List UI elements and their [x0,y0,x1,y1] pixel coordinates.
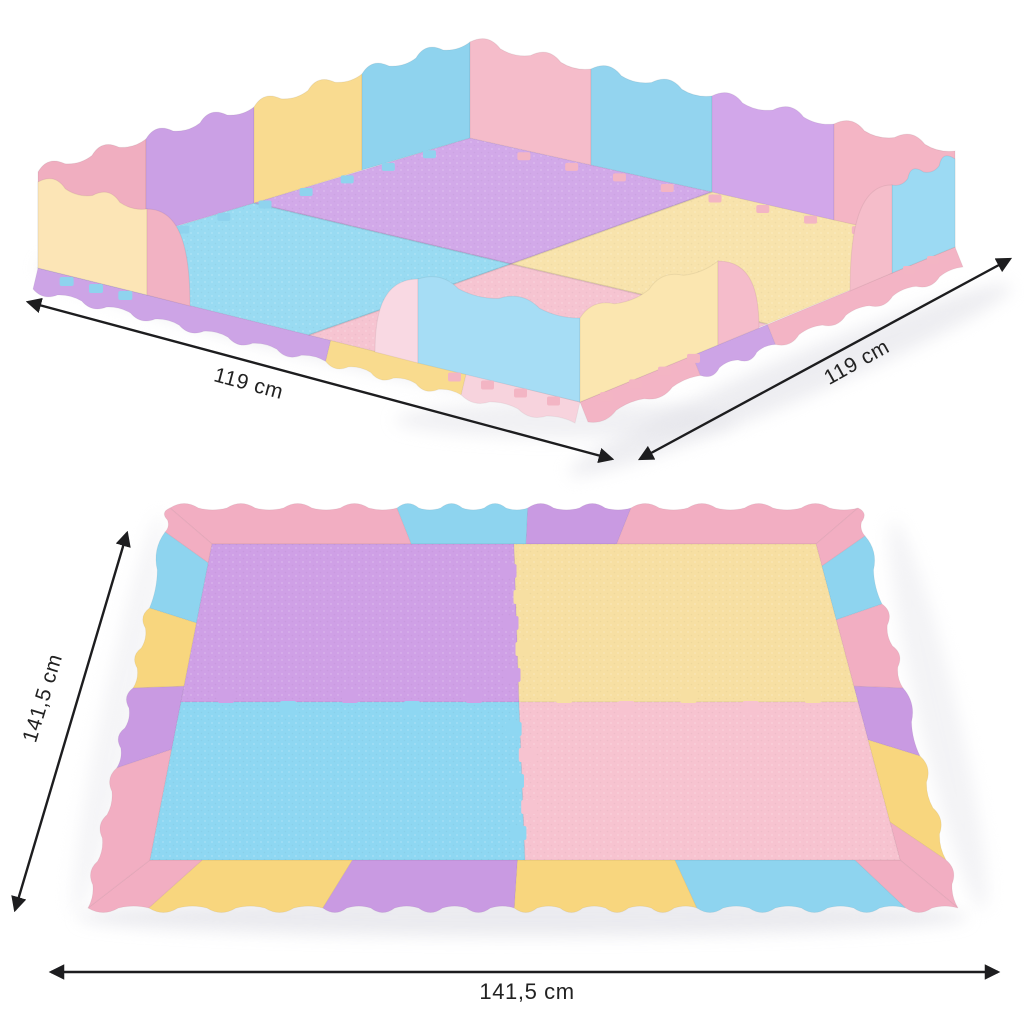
puzzle-tab [503,616,519,630]
assembled-playpen-illustration: 119 cm 119 cm [28,39,1020,494]
puzzle-tab [280,701,296,715]
puzzle-tab [60,277,74,286]
foam-texture [181,544,519,702]
border-piece [323,860,518,913]
puzzle-tab [382,163,395,171]
puzzle-tab [508,774,524,788]
puzzle-tab [342,689,358,703]
puzzle-tab [300,188,313,196]
puzzle-tab [629,379,642,388]
flat-mat-illustration: 141,5 cm 141,5 cm [15,504,1002,1005]
puzzle-tab [661,184,674,192]
puzzle-tab [218,689,234,703]
puzzle-tab [521,800,537,814]
border-piece [526,504,631,545]
puzzle-tab [217,213,230,221]
dimension-label-flat-side: 141,5 cm [18,651,67,745]
foam-texture [514,544,858,702]
puzzle-tab [481,381,494,390]
foam-texture [519,702,900,860]
puzzle-tab [505,668,521,682]
puzzle-tab [423,150,436,158]
puzzle-tab [404,701,420,715]
puzzle-tab [556,689,572,703]
dimension-label-flat-bottom: 141,5 cm [479,979,574,1004]
puzzle-tab [517,152,530,160]
puzzle-tab [547,397,560,406]
puzzle-tab [756,205,769,213]
puzzle-tab [600,392,613,401]
puzzle-tab [805,689,821,703]
puzzle-tab [903,266,915,274]
puzzle-tab [516,642,532,656]
border-piece [514,860,697,913]
puzzle-tab [613,173,626,181]
puzzle-tab [448,373,461,382]
puzzle-tab [510,826,526,840]
puzzle-tab [804,216,817,224]
puzzle-tab [618,701,634,715]
puzzle-tab [709,195,722,203]
puzzle-tab [743,701,759,715]
foam-texture [150,702,525,860]
puzzle-tab [466,689,482,703]
puzzle-tab [519,748,535,762]
dimension-arrow-flat-bottom: 141,5 cm [51,972,998,1004]
puzzle-tab [501,564,517,578]
puzzle-tab [341,175,354,183]
puzzle-tab [89,284,103,293]
puzzle-tab [514,590,530,604]
play-mat-diagram-canvas: 119 cm 119 cm 141,5 cm 141,5 cm [0,0,1024,1024]
border-piece [397,504,528,545]
border-piece [170,504,411,545]
puzzle-tab [259,201,272,209]
puzzle-tab [658,367,671,376]
puzzle-tab [927,256,939,264]
puzzle-tab [681,689,697,703]
border-piece [617,504,858,545]
puzzle-tab [118,291,132,300]
puzzle-tab [687,354,700,363]
puzzle-tab [506,722,522,736]
puzzle-tab [565,163,578,171]
puzzle-tab [514,389,527,398]
product-dimension-diagram: 119 cm 119 cm 141,5 cm 141,5 cm [0,0,1024,1024]
